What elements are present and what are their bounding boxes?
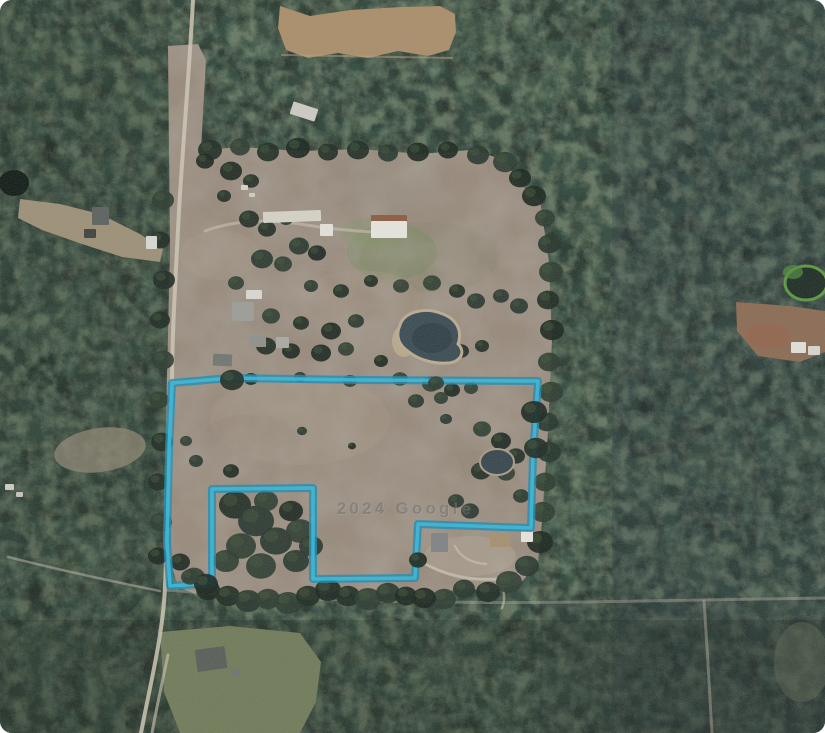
- overlay-layer: 2024 Google 2024 Google: [0, 0, 825, 733]
- map-viewport[interactable]: 2024 Google 2024 Google: [0, 0, 825, 733]
- satellite-map[interactable]: 2024 Google 2024 Google: [0, 0, 825, 733]
- image-grain: [0, 0, 825, 733]
